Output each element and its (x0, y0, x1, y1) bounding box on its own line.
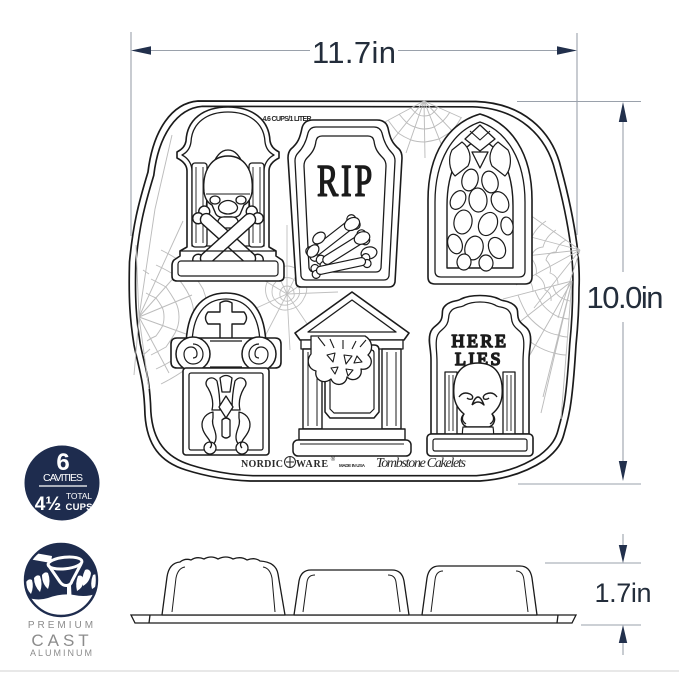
svg-text:CAVITIES: CAVITIES (43, 472, 83, 484)
svg-text:Tombstone Cakelets: Tombstone Cakelets (376, 456, 467, 471)
svg-text:ALUMINUM: ALUMINUM (30, 648, 94, 658)
svg-text:®: ® (331, 456, 336, 463)
svg-text:4½: 4½ (35, 494, 61, 515)
svg-text:CUPS: CUPS (66, 502, 93, 513)
svg-text:NORDIC: NORDIC (241, 459, 283, 470)
svg-text:WARE: WARE (296, 459, 328, 470)
svg-text:11.7in: 11.7in (312, 35, 396, 70)
svg-text:10.0in: 10.0in (587, 280, 664, 315)
svg-text:TOTAL: TOTAL (66, 491, 92, 501)
svg-text:4.6 CUPS/1 LITER: 4.6 CUPS/1 LITER (263, 116, 312, 123)
svg-text:HERE: HERE (452, 331, 509, 351)
svg-text:PREMIUM: PREMIUM (28, 620, 96, 631)
svg-text:MADE IN USA: MADE IN USA (339, 463, 366, 468)
svg-text:1.7in: 1.7in (595, 578, 652, 608)
svg-text:RIP: RIP (317, 156, 375, 206)
